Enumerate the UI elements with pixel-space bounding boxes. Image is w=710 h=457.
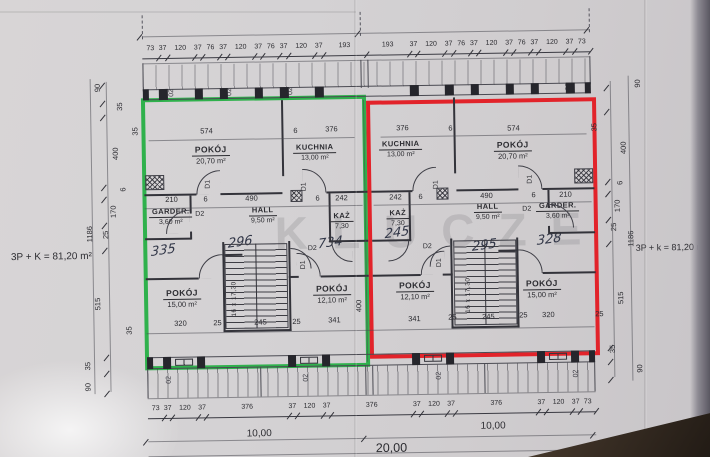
window-pier bbox=[470, 84, 478, 95]
dimension-label: 574 bbox=[200, 127, 213, 135]
window-pier bbox=[194, 88, 202, 99]
dimension-segment: 37 bbox=[219, 45, 227, 57]
dimension-label: 37 bbox=[198, 404, 206, 411]
dimension-segment: 120 bbox=[538, 40, 565, 52]
dimension-segment: 37 bbox=[409, 42, 417, 54]
dimension-label: 90 bbox=[634, 79, 642, 87]
dimension-label: 76 bbox=[207, 44, 215, 51]
dimension-label: 210 bbox=[165, 196, 178, 204]
dimension-segment: 37 bbox=[537, 400, 545, 412]
dimension-tick bbox=[605, 179, 611, 186]
dimension-label: 73 bbox=[146, 45, 154, 52]
dimension-segment: 37 bbox=[505, 40, 513, 52]
dimension-label: 210 bbox=[559, 191, 572, 199]
room-area: 12,10 m² bbox=[313, 295, 351, 304]
paper-fold-right bbox=[644, 0, 647, 457]
dimension-label: 37 bbox=[254, 43, 262, 50]
dimension-label: 6 bbox=[119, 187, 127, 191]
dimension-label: 242 bbox=[335, 194, 348, 202]
window-pier bbox=[315, 86, 323, 97]
room-area: 12,10 m² bbox=[396, 292, 434, 301]
dimension-segment: 37 bbox=[164, 406, 172, 418]
room-label: POKÓJ20,70 m² bbox=[494, 140, 532, 160]
dimension-segment: 37 bbox=[315, 43, 323, 55]
dimension-label: 400 bbox=[620, 141, 628, 154]
room-name: KUCHNIA bbox=[293, 143, 337, 154]
dimension-label: 37 bbox=[413, 401, 421, 408]
window-pier bbox=[585, 82, 591, 93]
window-pier bbox=[220, 88, 228, 99]
room-name: POKÓJ bbox=[523, 279, 561, 291]
dimension-label: 76 bbox=[267, 43, 275, 50]
window-pier bbox=[537, 351, 545, 363]
dimension-segment: 120 bbox=[296, 404, 322, 416]
dimension-label: 35 bbox=[131, 127, 139, 135]
dimension-label: 120 bbox=[295, 43, 307, 50]
dimension-segment: 376 bbox=[455, 400, 537, 413]
dimension-segment: 120 bbox=[478, 41, 505, 53]
dimension-label: 6 bbox=[203, 195, 207, 203]
top-dimension-chain: 7337120377637120377637120371931933712037… bbox=[142, 39, 590, 59]
room-area: 15,00 m² bbox=[163, 299, 201, 308]
room-name: HALL bbox=[474, 203, 502, 213]
dimension-label: 341 bbox=[328, 316, 341, 324]
door-label: D2 bbox=[308, 245, 317, 252]
dimension-segment: 37 bbox=[444, 41, 452, 53]
dimension-label: 515 bbox=[94, 298, 102, 311]
room-label: POKÓJ15,00 m² bbox=[163, 289, 201, 309]
total-left: 10,00 bbox=[247, 429, 272, 440]
dimension-label: 37 bbox=[572, 398, 580, 405]
room-area: 9,50 m² bbox=[474, 212, 502, 221]
dimension-label: 6 bbox=[315, 195, 319, 203]
reference-line bbox=[142, 15, 143, 39]
dimension-tick bbox=[608, 377, 614, 384]
room-name: KAŻ bbox=[330, 212, 353, 222]
dimension-label: 574 bbox=[507, 124, 520, 132]
dimension-segment: 37 bbox=[447, 401, 455, 413]
balcony-divider bbox=[594, 362, 595, 391]
dimension-segment: 37 bbox=[254, 44, 262, 56]
dimension-tick bbox=[100, 101, 106, 108]
room-name: KAŻ bbox=[386, 209, 409, 219]
dimension-label: 37 bbox=[530, 39, 538, 46]
dimension-label: 341 bbox=[408, 315, 421, 323]
dimension-label: 400 bbox=[112, 147, 120, 160]
dimension-tick bbox=[605, 191, 611, 198]
dimension-label: 6 bbox=[418, 193, 422, 201]
dimension-label: 37 bbox=[323, 402, 331, 409]
room-label: KAŻ7,30 bbox=[330, 212, 353, 231]
room-name: KUCHNIA bbox=[379, 140, 423, 151]
dimension-label: 490 bbox=[480, 192, 493, 200]
dimension-segment: 37 bbox=[470, 41, 478, 53]
room-name: HALL bbox=[249, 206, 277, 216]
dimension-label: 120 bbox=[428, 401, 440, 408]
dimension-segment: 37 bbox=[198, 405, 206, 417]
window-pier bbox=[531, 83, 539, 94]
dimension-tick bbox=[101, 185, 107, 192]
room-area: 20,70 m² bbox=[494, 151, 532, 160]
dimension-segment: 37 bbox=[413, 402, 421, 414]
room-label: POKÓJ15,00 m² bbox=[523, 279, 561, 299]
dimension-label: 37 bbox=[447, 400, 455, 407]
dimension-label: 6 bbox=[293, 127, 297, 135]
dimension-label: 35 bbox=[116, 102, 124, 110]
dimension-segment: 193 bbox=[323, 43, 366, 56]
dimension-tick bbox=[104, 370, 110, 377]
dimension-segment: 120 bbox=[288, 44, 315, 56]
dimension-label: 37 bbox=[194, 44, 202, 51]
dimension-segment: 37 bbox=[288, 404, 296, 416]
dimension-label: 120 bbox=[174, 45, 186, 52]
radiator-mark bbox=[300, 357, 318, 364]
dimension-tick bbox=[590, 432, 596, 439]
vent-shaft bbox=[574, 168, 593, 183]
dimension-label: 193 bbox=[339, 42, 351, 49]
room-area: 7,30 bbox=[331, 222, 354, 231]
window-pier bbox=[147, 357, 153, 369]
reference-line bbox=[360, 12, 361, 36]
window-pier bbox=[589, 350, 595, 362]
dimension-label: 120 bbox=[425, 41, 437, 48]
vent-shaft bbox=[145, 175, 164, 190]
radiator-mark bbox=[175, 359, 193, 366]
reference-line bbox=[589, 8, 590, 32]
window-pier bbox=[159, 89, 167, 100]
dimension-segment: 76 bbox=[453, 41, 470, 53]
dimension-tick bbox=[361, 435, 367, 442]
radiator-mark bbox=[424, 355, 442, 362]
dimension-label: 37 bbox=[164, 405, 172, 412]
window-pier bbox=[446, 352, 454, 364]
dimension-segment: 73 bbox=[148, 406, 164, 418]
window-pier bbox=[143, 89, 149, 100]
dimension-segment: 376 bbox=[206, 404, 288, 417]
dimension-segment: 120 bbox=[421, 402, 447, 414]
dimension-segment: 73 bbox=[580, 399, 596, 411]
window-pier bbox=[571, 350, 579, 362]
dimension-segment: 193 bbox=[366, 42, 409, 55]
dimension-segment: 73 bbox=[574, 39, 591, 51]
dimension-tick bbox=[603, 85, 609, 92]
window-pier bbox=[197, 356, 205, 368]
room-area: 13,00 m² bbox=[379, 150, 423, 159]
dimension-label: 37 bbox=[410, 41, 418, 48]
left-unit-area-label: 3P + K = 81,20 m² bbox=[11, 252, 92, 264]
dimension-label: 6 bbox=[616, 181, 624, 185]
dimension-segment: 120 bbox=[418, 42, 445, 54]
dimension-label: 6 bbox=[448, 125, 452, 133]
dimension-segment: 37 bbox=[572, 399, 580, 411]
wall-segment bbox=[189, 196, 191, 214]
dimension-segment: 120 bbox=[227, 45, 254, 57]
vent-shaft bbox=[290, 190, 302, 202]
dimension-label: 376 bbox=[241, 404, 253, 411]
dimension-segment: 120 bbox=[172, 405, 198, 417]
window-pier bbox=[287, 355, 295, 367]
dimension-label: 515 bbox=[617, 292, 625, 305]
dimension-label: 120 bbox=[546, 39, 558, 46]
dimension-label: 37 bbox=[315, 42, 323, 49]
dimension-line bbox=[148, 434, 596, 442]
paper-fold-center bbox=[354, 0, 357, 457]
window-pier bbox=[322, 354, 330, 366]
dimension-label: 37 bbox=[219, 44, 227, 51]
dimension-label: 120 bbox=[179, 405, 191, 412]
dimension-label: 25 bbox=[595, 310, 603, 318]
radiator-mark bbox=[549, 353, 567, 360]
dimension-label: 73 bbox=[578, 38, 586, 45]
window-pier bbox=[410, 85, 418, 96]
dimension-segment: 73 bbox=[142, 46, 159, 58]
dimension-label: 76 bbox=[518, 39, 526, 46]
room-name: POKÓJ bbox=[313, 284, 351, 296]
dimension-label: 242 bbox=[389, 193, 402, 201]
door-label: D2 bbox=[423, 243, 432, 250]
dimension-label: 376 bbox=[396, 124, 409, 132]
dimension-label: 35 bbox=[126, 326, 134, 334]
dimension-label: 376 bbox=[490, 400, 502, 407]
room-label: POKÓJ12,10 m² bbox=[396, 281, 434, 301]
room-area: 15,00 m² bbox=[523, 290, 561, 299]
room-label: KUCHNIA13,00 m² bbox=[293, 143, 337, 162]
dimension-label: 37 bbox=[159, 45, 167, 52]
room-label: HALL9,50 m² bbox=[249, 206, 277, 225]
dimension-label: 37 bbox=[537, 399, 545, 406]
dimension-tick bbox=[604, 109, 610, 116]
dimension-segment: 76 bbox=[202, 45, 219, 57]
dimension-segment: 76 bbox=[513, 40, 530, 52]
dimension-tick bbox=[102, 223, 108, 230]
dimension-label: 37 bbox=[280, 43, 288, 50]
dimension-tick bbox=[102, 248, 108, 255]
dimension-segment: 37 bbox=[279, 44, 287, 56]
dimension-label: 73 bbox=[584, 398, 592, 405]
door-label: D2 bbox=[195, 211, 204, 218]
window-pier bbox=[445, 84, 453, 95]
dimension-label: 35 bbox=[84, 362, 92, 370]
room-label: HALL9,50 m² bbox=[474, 203, 502, 222]
dimension-label: 35 bbox=[590, 123, 598, 131]
vent-shaft bbox=[436, 188, 448, 200]
room-label: POKÓJ20,70 m² bbox=[192, 145, 230, 165]
dimension-segment: 76 bbox=[262, 44, 279, 56]
dimension-label: 120 bbox=[235, 44, 247, 51]
window-pier bbox=[255, 87, 263, 98]
dimension-label: 76 bbox=[457, 40, 465, 47]
dimension-segment: 120 bbox=[167, 46, 194, 58]
dimension-label: 37 bbox=[288, 403, 296, 410]
floor-plan-photo: KLUCZE 733712037763712037763712037193193… bbox=[0, 0, 710, 457]
room-name: POKÓJ bbox=[396, 281, 434, 293]
door-label: D2 bbox=[522, 206, 531, 213]
dimension-label: 6 bbox=[531, 191, 535, 199]
dimension-label: 376 bbox=[325, 125, 338, 133]
dimension-label: 376 bbox=[366, 402, 378, 409]
dimension-tick bbox=[143, 439, 149, 446]
dimension-label: 37 bbox=[566, 39, 574, 46]
window-pier bbox=[566, 83, 574, 94]
dimension-segment: 37 bbox=[530, 40, 538, 52]
bottom-dimension-chain: 7337120373763712037376371203737637120377… bbox=[148, 399, 596, 419]
window-label: 02 bbox=[168, 89, 175, 97]
room-label: KUCHNIA13,00 m² bbox=[379, 140, 423, 159]
dimension-label: 170 bbox=[110, 205, 118, 218]
dimension-tick bbox=[100, 115, 106, 122]
window-pier bbox=[280, 87, 288, 98]
window-pier bbox=[506, 83, 514, 94]
dimension-line bbox=[142, 29, 590, 37]
dimension-segment: 37 bbox=[158, 46, 166, 58]
dimension-tick bbox=[101, 197, 107, 204]
room-area: 13,00 m² bbox=[293, 153, 337, 162]
dimension-label: 37 bbox=[470, 40, 478, 47]
dimension-label: 37 bbox=[445, 40, 453, 47]
dimension-label: 320 bbox=[542, 311, 555, 319]
room-name: POKÓJ bbox=[163, 289, 201, 301]
total-right: 10,00 bbox=[481, 421, 506, 432]
room-area: 9,50 m² bbox=[249, 216, 277, 225]
dimension-label: 73 bbox=[152, 405, 160, 412]
dimension-label: 25 bbox=[213, 319, 221, 327]
paper-edge-shadow bbox=[690, 0, 710, 457]
dimension-label: 120 bbox=[304, 403, 316, 410]
dimension-segment: 37 bbox=[565, 40, 573, 52]
room-label: POKÓJ12,10 m² bbox=[313, 284, 351, 304]
dimension-label: 25 bbox=[292, 318, 300, 326]
dimension-tick bbox=[104, 390, 110, 397]
dimension-label: 120 bbox=[553, 399, 565, 406]
dimension-tick bbox=[608, 359, 614, 366]
dimension-label: 37 bbox=[505, 39, 513, 46]
dimension-line bbox=[149, 449, 597, 457]
dimension-segment: 37 bbox=[323, 403, 331, 415]
dimension-segment: 376 bbox=[331, 402, 413, 415]
dimension-tick bbox=[104, 354, 110, 361]
window-pier bbox=[163, 357, 171, 369]
window-pier bbox=[412, 353, 420, 365]
dimension-label: 120 bbox=[486, 40, 498, 47]
room-name: POKÓJ bbox=[192, 145, 230, 157]
dimension-label: 320 bbox=[174, 320, 187, 328]
dimension-label: 193 bbox=[382, 41, 394, 48]
dimension-label: 90 bbox=[84, 383, 92, 391]
dimension-segment: 37 bbox=[194, 45, 202, 57]
room-name: POKÓJ bbox=[494, 140, 532, 152]
balcony-divider bbox=[589, 56, 590, 84]
dimension-label: 170 bbox=[614, 200, 622, 213]
dimension-segment: 120 bbox=[545, 400, 571, 412]
room-area: 20,70 m² bbox=[192, 156, 230, 165]
dimension-label: 490 bbox=[245, 195, 258, 203]
dimension-label: 25 bbox=[519, 311, 527, 319]
